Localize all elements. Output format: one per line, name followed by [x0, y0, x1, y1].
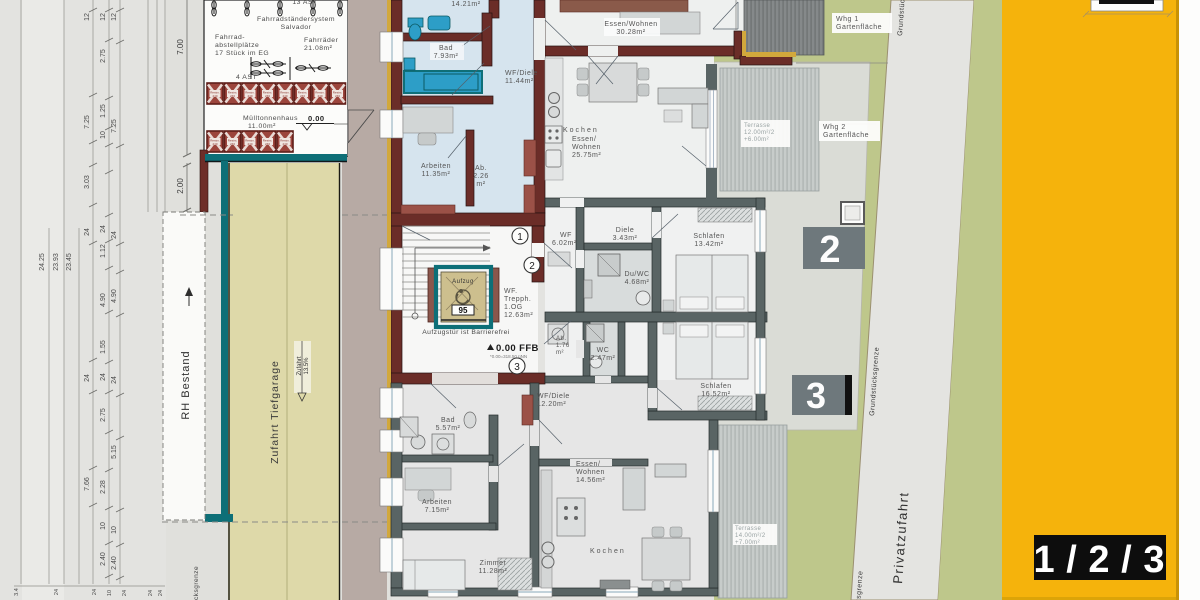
svg-text:23.45: 23.45	[66, 253, 73, 271]
svg-text:1 / 2 / 3: 1 / 2 / 3	[1034, 539, 1167, 581]
svg-text:3: 3	[514, 362, 520, 373]
svg-text:7.66: 7.66	[84, 477, 91, 491]
svg-text:abstellplätze: abstellplätze	[215, 42, 259, 49]
svg-text:5.15: 5.15	[111, 445, 118, 459]
svg-text:12: 12	[100, 13, 107, 21]
svg-text:Salvador: Salvador	[281, 24, 312, 31]
svg-text:2.47m²: 2.47m²	[591, 355, 616, 362]
svg-text:3.43m²: 3.43m²	[613, 235, 638, 242]
svg-text:24: 24	[111, 231, 118, 239]
svg-text:7.25: 7.25	[111, 119, 118, 133]
svg-text:Wohnen: Wohnen	[576, 469, 605, 476]
svg-text:10: 10	[100, 522, 107, 530]
svg-text:Bad: Bad	[441, 417, 455, 424]
svg-text:2.40: 2.40	[100, 552, 107, 566]
svg-text:12.63m²: 12.63m²	[504, 312, 533, 319]
svg-text:Schlafen: Schlafen	[693, 233, 724, 240]
svg-text:11.44m²: 11.44m²	[505, 78, 534, 85]
svg-text:m²: m²	[476, 181, 485, 188]
svg-text:30.28m²: 30.28m²	[616, 29, 645, 36]
svg-text:Arbeiten: Arbeiten	[422, 499, 452, 506]
svg-text:24: 24	[100, 373, 107, 381]
svg-text:3: 3	[806, 375, 826, 416]
svg-text:Whg 1: Whg 1	[836, 16, 859, 23]
svg-text:25.75m²: 25.75m²	[572, 152, 601, 159]
svg-text:Essen/: Essen/	[576, 461, 600, 468]
svg-text:11.35m²: 11.35m²	[422, 171, 451, 178]
svg-text:11.28m²: 11.28m²	[479, 568, 508, 575]
svg-text:Zimmer: Zimmer	[480, 560, 507, 567]
svg-text:4 AST: 4 AST	[236, 74, 257, 81]
svg-text:10: 10	[100, 131, 107, 139]
svg-text:Kochen: Kochen	[563, 127, 599, 134]
svg-text:12.00m²/2: 12.00m²/2	[744, 130, 775, 136]
svg-text:4.90: 4.90	[111, 289, 118, 303]
svg-text:10: 10	[107, 590, 113, 596]
svg-text:Gartenfläche: Gartenfläche	[823, 132, 869, 139]
svg-text:Diele: Diele	[616, 227, 634, 234]
svg-text:2.75: 2.75	[100, 408, 107, 422]
svg-text:2: 2	[529, 261, 535, 272]
svg-text:24: 24	[54, 589, 60, 595]
svg-text:Du/WC: Du/WC	[624, 271, 649, 278]
svg-text:24: 24	[111, 376, 118, 384]
svg-text:1.OG: 1.OG	[504, 304, 523, 311]
svg-text:17 Stück im EG: 17 Stück im EG	[215, 50, 269, 57]
svg-text:1: 1	[517, 232, 523, 243]
svg-text:WC: WC	[597, 347, 610, 354]
svg-text:24.25: 24.25	[39, 253, 46, 271]
svg-text:*0.00=318.50 üNN: *0.00=318.50 üNN	[490, 354, 527, 359]
svg-text:2.28: 2.28	[100, 480, 107, 494]
svg-text:3.4: 3.4	[14, 588, 20, 596]
svg-text:Fahrradständersystem: Fahrradständersystem	[257, 16, 335, 23]
svg-text:0.00: 0.00	[308, 114, 325, 123]
svg-text:24: 24	[84, 374, 91, 382]
svg-text:2.40: 2.40	[111, 556, 118, 570]
svg-text:14.56m²: 14.56m²	[576, 477, 605, 484]
svg-text:WF: WF	[560, 232, 572, 239]
svg-text:1.25: 1.25	[100, 104, 107, 118]
svg-text:Kochen: Kochen	[590, 548, 626, 555]
svg-text:0.00 FFB: 0.00 FFB	[496, 343, 539, 354]
svg-text:WF/Diele: WF/Diele	[505, 70, 538, 77]
svg-text:WF.: WF.	[504, 288, 518, 295]
svg-text:4.68m²: 4.68m²	[625, 279, 650, 286]
svg-text:Fahrrad-: Fahrrad-	[215, 34, 245, 41]
svg-text:3.03: 3.03	[84, 175, 91, 189]
svg-text:13 AST: 13 AST	[292, 0, 317, 6]
svg-text:Aufzugstür ist Barrierefrei: Aufzugstür ist Barrierefrei	[422, 329, 510, 336]
svg-text:+6.00m²: +6.00m²	[744, 137, 769, 143]
svg-text:24: 24	[158, 590, 164, 596]
svg-text:14.00m²/2: 14.00m²/2	[735, 533, 766, 539]
svg-text:5.57m²: 5.57m²	[436, 425, 461, 432]
svg-text:1.12: 1.12	[100, 244, 107, 258]
svg-text:24: 24	[84, 228, 91, 236]
svg-text:+7.00m²: +7.00m²	[735, 540, 760, 546]
svg-text:2.00: 2.00	[176, 178, 185, 194]
svg-text:13.5%: 13.5%	[304, 357, 310, 375]
svg-text:Trepph.: Trepph.	[504, 296, 531, 303]
svg-text:4.90: 4.90	[100, 293, 107, 307]
svg-text:7.25: 7.25	[84, 115, 91, 129]
svg-text:13.42m²: 13.42m²	[694, 241, 723, 248]
svg-text:Mülltonnenhaus: Mülltonnenhaus	[243, 115, 298, 122]
svg-text:Gartenfläche: Gartenfläche	[836, 24, 882, 31]
svg-text:10: 10	[111, 526, 118, 534]
svg-text:m²: m²	[556, 350, 564, 356]
svg-text:11.00m²: 11.00m²	[248, 123, 276, 130]
svg-text:Bad: Bad	[439, 45, 453, 52]
svg-text:24: 24	[92, 589, 98, 595]
svg-text:Zufahrt Tiefgarage: Zufahrt Tiefgarage	[269, 360, 281, 464]
svg-text:Schlafen: Schlafen	[700, 383, 731, 390]
svg-text:95: 95	[459, 306, 468, 315]
svg-text:Essen/Wohnen: Essen/Wohnen	[604, 21, 657, 28]
svg-text:21.08m²: 21.08m²	[304, 45, 333, 52]
svg-text:2.26: 2.26	[473, 173, 489, 180]
svg-text:7.93m²: 7.93m²	[434, 53, 459, 60]
svg-text:24: 24	[148, 590, 154, 596]
svg-text:Essen/: Essen/	[572, 136, 596, 143]
svg-text:Arbeiten: Arbeiten	[421, 163, 451, 170]
svg-text:12.20m²: 12.20m²	[537, 401, 566, 408]
svg-text:14.21m²: 14.21m²	[451, 1, 480, 8]
svg-text:23.93: 23.93	[53, 253, 60, 271]
svg-text:Whg 2: Whg 2	[823, 124, 846, 131]
svg-text:1.76: 1.76	[556, 343, 570, 349]
svg-text:Ab.: Ab.	[556, 336, 567, 342]
svg-text:16.52m²: 16.52m²	[701, 391, 730, 398]
svg-text:7.00: 7.00	[176, 39, 185, 55]
svg-text:cksgrenze: cksgrenze	[193, 566, 200, 600]
svg-text:1.55: 1.55	[100, 340, 107, 354]
svg-text:2: 2	[819, 229, 840, 271]
svg-text:12: 12	[111, 13, 118, 21]
svg-text:24: 24	[122, 590, 128, 596]
svg-text:Terrasse: Terrasse	[735, 526, 761, 532]
svg-text:Ab.: Ab.	[475, 165, 487, 172]
svg-text:Terrasse: Terrasse	[744, 123, 770, 129]
svg-text:2.75: 2.75	[100, 49, 107, 63]
svg-text:RH Bestand: RH Bestand	[180, 350, 192, 419]
svg-text:24: 24	[100, 225, 107, 233]
svg-text:12: 12	[84, 13, 91, 21]
svg-text:Wohnen: Wohnen	[572, 144, 601, 151]
svg-text:WF/Diele: WF/Diele	[537, 393, 570, 400]
svg-text:7.15m²: 7.15m²	[425, 507, 450, 514]
svg-text:Fahrräder: Fahrräder	[304, 37, 339, 44]
svg-text:6.02m²: 6.02m²	[552, 240, 577, 247]
svg-text:Aufzug: Aufzug	[452, 279, 474, 285]
